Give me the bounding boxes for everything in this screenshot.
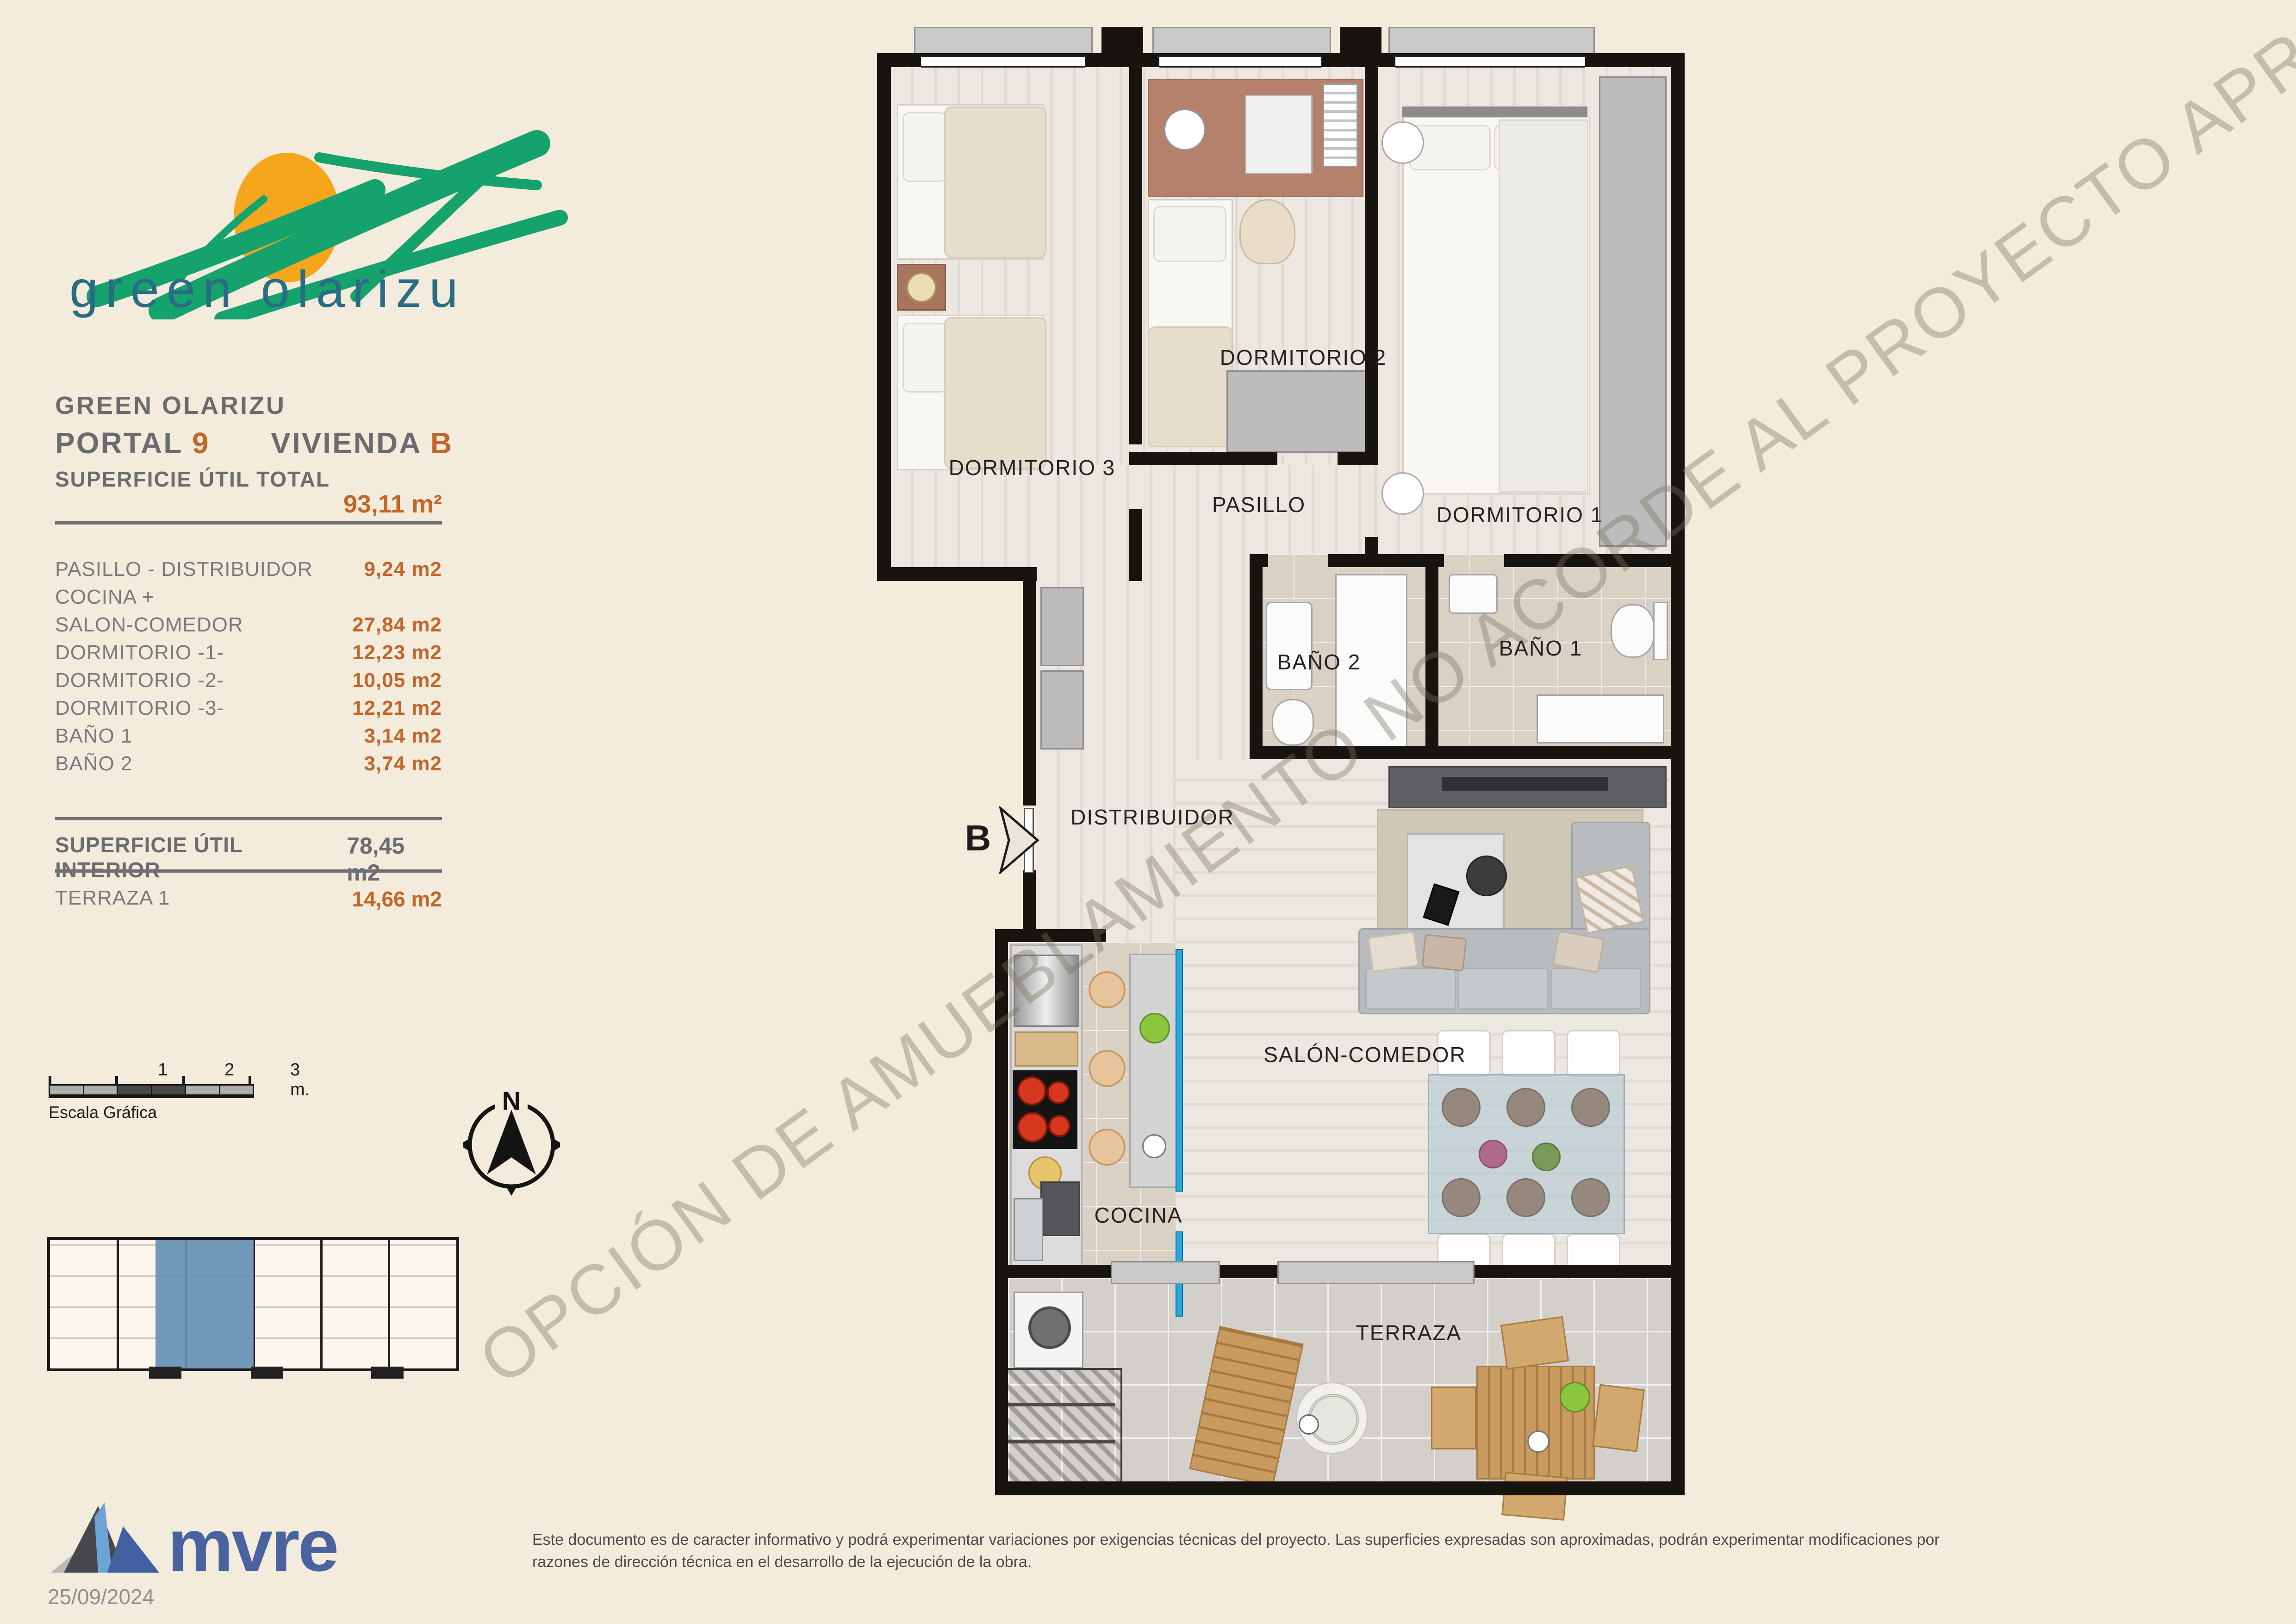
bano1-shower-tray xyxy=(1537,694,1664,743)
scale-seg xyxy=(186,1086,220,1095)
room-label-cocina: COCINA xyxy=(1095,1203,1183,1228)
table-row: BAÑO 1 3,14 m2 xyxy=(55,725,442,752)
row-label: COCINA + xyxy=(55,586,155,609)
scale-tick-label-2: 2 xyxy=(224,1060,234,1080)
date: 25/09/2024 xyxy=(48,1584,154,1609)
divider xyxy=(55,817,442,820)
kitchen-cutting-board xyxy=(1014,1031,1078,1067)
table-row: DORMITORIO -3- 12,21 m2 xyxy=(55,697,442,725)
dorm2-cd-icon xyxy=(1164,109,1206,150)
room-label-pasillo: PASILLO xyxy=(1212,492,1306,517)
sofa-throw-blanket xyxy=(1575,865,1644,934)
window-sill xyxy=(914,27,1093,55)
dining-plate-icon xyxy=(1506,1178,1545,1217)
terrace-rail-line xyxy=(1000,1440,1115,1443)
dorm2-wardrobe xyxy=(1226,370,1367,453)
floorplan-sheet: green olarizu GREEN OLARIZU PORTAL 9 VIV… xyxy=(0,0,2296,1624)
dining-plate-icon xyxy=(1571,1088,1610,1127)
sofa-pillow xyxy=(1421,934,1467,971)
room-label-bano2: BAÑO 2 xyxy=(1277,650,1361,675)
kitchen-burner-icon xyxy=(1017,1112,1048,1143)
row-label: DORMITORIO -3- xyxy=(55,697,224,720)
table-row: DORMITORIO -2- 10,05 m2 xyxy=(55,669,442,697)
dining-chair xyxy=(1502,1030,1556,1077)
sofa-cushion xyxy=(1365,968,1456,1010)
window-sill xyxy=(1388,27,1595,55)
key-plan xyxy=(47,1237,459,1371)
scale-caption: Escala Gráfica xyxy=(49,1103,157,1122)
sofa-pillow xyxy=(1368,931,1419,972)
dorm3-bed-2-blanket xyxy=(944,317,1046,469)
key-plan-highlight-unit xyxy=(156,1240,254,1368)
terrace-coffee-cup-icon xyxy=(1299,1414,1319,1435)
disclaimer: Este documento es de caracter informativ… xyxy=(532,1529,2263,1574)
key-plan-wall xyxy=(388,1240,390,1368)
wall-dorm3-dorm2-low xyxy=(1129,509,1142,581)
scale-seg xyxy=(220,1086,253,1095)
terraza-value: 14,66 m2 xyxy=(352,887,442,912)
terrace-cup-icon xyxy=(1527,1430,1549,1453)
kitchen-burner-icon xyxy=(1048,1115,1070,1137)
coffee-table-bowl-icon xyxy=(1466,856,1507,896)
room-label-dormitorio3: DORMITORIO 3 xyxy=(949,455,1116,480)
wall-stub xyxy=(1101,27,1143,55)
row-value: 3,14 m2 xyxy=(364,725,442,748)
row-value: 10,05 m2 xyxy=(352,669,442,692)
interior-value: 78,45 m2 xyxy=(347,832,442,886)
sofa-cushion xyxy=(1550,968,1641,1010)
terrace-glass-door xyxy=(1277,1261,1475,1284)
wall-jog xyxy=(877,567,1037,581)
superficie-interior-row: SUPERFICIE ÚTIL INTERIOR 78,45 m2 xyxy=(55,832,442,886)
terraza-row: TERRAZA 1 14,66 m2 xyxy=(55,887,442,912)
kitchen-counter-blue-edge xyxy=(1176,949,1183,1192)
wall-outer-left-mid xyxy=(1023,567,1036,806)
kitchen-stool xyxy=(1089,1129,1126,1166)
distribuidor-closet xyxy=(1040,587,1084,666)
superficie-total-value: 93,11 m² xyxy=(55,490,442,518)
row-label: BAÑO 1 xyxy=(55,725,132,748)
compass-north-label: N xyxy=(502,1086,521,1115)
scale-tick-label-3: 3 m. xyxy=(290,1060,310,1100)
key-plan-stair-stub xyxy=(251,1367,283,1379)
dorm1-bed-blanket xyxy=(1499,119,1588,493)
wall-stub xyxy=(1340,27,1381,55)
scale-seg xyxy=(152,1086,187,1095)
dorm1-nightstand-icon xyxy=(1381,121,1424,164)
bano1-toilet-tank xyxy=(1653,602,1668,660)
vivienda-label: VIVIENDA xyxy=(271,426,421,460)
wall-salon-terraza-c xyxy=(1472,1265,1685,1278)
terrace-chair xyxy=(1501,1472,1568,1520)
dining-flowers-icon xyxy=(1532,1143,1561,1171)
row-value: 27,84 m2 xyxy=(352,613,442,637)
room-label-salon: SALÓN-COMEDOR xyxy=(1263,1042,1466,1067)
wall-dorm2-bottom2 xyxy=(1338,452,1378,465)
table-row: COCINA + xyxy=(55,586,442,613)
portal-label: PORTAL xyxy=(55,426,182,460)
table-row: PASILLO - DISTRIBUIDOR 9,24 m2 xyxy=(55,558,442,586)
distribuidor-closet xyxy=(1040,670,1084,750)
dorm2-chair xyxy=(1239,199,1295,264)
dining-plate-icon xyxy=(1506,1088,1545,1127)
dining-plate-icon xyxy=(1571,1178,1610,1217)
dorm2-laptop-icon xyxy=(1245,95,1313,174)
scale-seg xyxy=(84,1086,118,1095)
key-plan-stair-stub xyxy=(149,1367,181,1379)
scale-baseline xyxy=(49,1094,254,1098)
row-label: PASILLO - DISTRIBUIDOR xyxy=(55,558,313,581)
window-sill xyxy=(1152,27,1331,55)
wall-bano2-left xyxy=(1250,554,1263,759)
row-value: 9,24 m2 xyxy=(364,558,442,581)
portal-vivienda-line: PORTAL 9 VIVIENDA B xyxy=(55,426,453,460)
room-label-distribuidor: DISTRIBUIDOR xyxy=(1070,805,1234,830)
window-frame xyxy=(1395,56,1585,68)
island-coffee-icon xyxy=(1142,1134,1166,1158)
dorm3-bed-1-pillow xyxy=(902,112,947,182)
compass-icon: N xyxy=(463,1086,560,1197)
dorm3-bed-2-pillow xyxy=(902,323,947,393)
key-plan-wall xyxy=(117,1240,119,1368)
dorm2-shelf xyxy=(1323,83,1358,167)
dorm1-bed-headboard xyxy=(1402,106,1587,117)
kitchen-burner-icon xyxy=(1047,1081,1070,1104)
entrance-letter: B xyxy=(965,817,991,859)
dorm1-nightstand-icon xyxy=(1381,472,1424,515)
key-plan-wall xyxy=(320,1240,323,1368)
row-value: 12,21 m2 xyxy=(352,697,442,720)
scale-seg xyxy=(50,1086,84,1095)
terrace-chair xyxy=(1500,1316,1569,1370)
island-salad-plate-icon xyxy=(1139,1013,1170,1043)
vivienda-letter: B xyxy=(430,426,453,460)
table-row: DORMITORIO -1- 12,23 m2 xyxy=(55,641,442,669)
wall-salon-terraza-a xyxy=(995,1265,1111,1278)
area-table: PASILLO - DISTRIBUIDOR 9,24 m2 COCINA + … xyxy=(55,558,442,780)
row-label: DORMITORIO -2- xyxy=(55,669,224,692)
kitchen-sink xyxy=(1014,1198,1043,1261)
dorm3-lamp-icon xyxy=(906,272,937,303)
terrace-salad-plate-icon xyxy=(1560,1382,1590,1412)
terrace-chair xyxy=(1431,1387,1476,1449)
wall-outer-left-upper xyxy=(877,53,891,581)
window-frame xyxy=(1159,56,1321,68)
mvre-logo-icon: mvre xyxy=(46,1502,370,1581)
kitchen-oven xyxy=(1040,1181,1080,1236)
row-value: 3,74 m2 xyxy=(364,752,442,775)
disclaimer-line-2: razones de dirección técnica en el desar… xyxy=(532,1551,2263,1573)
terrace-glass-door xyxy=(1111,1261,1220,1284)
terrace-railing xyxy=(997,1368,1122,1485)
dorm2-bed-pillow xyxy=(1153,206,1226,262)
project-title: GREEN OLARIZU xyxy=(55,391,286,420)
terraza-label: TERRAZA 1 xyxy=(55,887,170,912)
terrace-chair xyxy=(1592,1384,1645,1452)
brand-logo-text: green olarizu xyxy=(69,259,466,319)
dining-plate-icon xyxy=(1442,1088,1481,1127)
divider xyxy=(55,521,442,525)
terrace-rail-line xyxy=(1000,1403,1115,1406)
scale-bar: 1 2 3 m. Escala Gráfica xyxy=(49,1060,289,1120)
portal-number: 9 xyxy=(192,426,210,460)
table-row: BAÑO 2 3,74 m2 xyxy=(55,752,442,780)
row-label: BAÑO 2 xyxy=(55,752,132,775)
row-label: SALON-COMEDOR xyxy=(55,613,243,637)
wall-salon-terraza-b xyxy=(1217,1265,1277,1278)
tv-screen xyxy=(1442,777,1608,791)
wall-terraza-bottom xyxy=(995,1481,1685,1495)
wall-dorm2-bottom xyxy=(1129,452,1277,465)
divider xyxy=(55,869,442,873)
room-label-terraza: TERRAZA xyxy=(1356,1320,1462,1345)
wall-dorm3-dorm2 xyxy=(1129,53,1142,444)
key-plan-stair-stub xyxy=(371,1367,404,1379)
kitchen-stool xyxy=(1089,1050,1126,1087)
wall-outer-right xyxy=(1671,53,1685,1495)
dining-plate-icon xyxy=(1442,1178,1481,1217)
row-value: 12,23 m2 xyxy=(352,641,442,664)
interior-label: SUPERFICIE ÚTIL INTERIOR xyxy=(55,832,347,886)
dining-flowers-icon xyxy=(1479,1140,1507,1168)
scale-seg xyxy=(118,1086,152,1095)
entrance-arrow-icon xyxy=(999,806,1041,874)
row-label: DORMITORIO -1- xyxy=(55,641,224,664)
mvre-logo-text: mvre xyxy=(168,1504,337,1581)
wall-dorm2-dorm1 xyxy=(1365,53,1378,465)
room-label-dormitorio1: DORMITORIO 1 xyxy=(1437,502,1604,527)
bano2-sink xyxy=(1266,602,1313,690)
bano1-toilet xyxy=(1611,604,1655,658)
dorm3-bed-1-blanket xyxy=(944,106,1046,258)
scale-tick-label-1: 1 xyxy=(158,1060,168,1080)
sofa-cushion xyxy=(1458,968,1549,1010)
dining-chair xyxy=(1567,1030,1620,1077)
superficie-total-label: SUPERFICIE ÚTIL TOTAL xyxy=(55,467,330,492)
kitchen-burner-icon xyxy=(1017,1076,1046,1106)
room-label-bano1: BAÑO 1 xyxy=(1499,636,1583,661)
room-label-dormitorio2: DORMITORIO 2 xyxy=(1220,345,1387,370)
washing-machine-door-icon xyxy=(1028,1306,1071,1349)
disclaimer-line-1: Este documento es de caracter informativ… xyxy=(532,1529,2263,1551)
table-row: SALON-COMEDOR 27,84 m2 xyxy=(55,613,442,641)
window-frame xyxy=(921,56,1085,68)
